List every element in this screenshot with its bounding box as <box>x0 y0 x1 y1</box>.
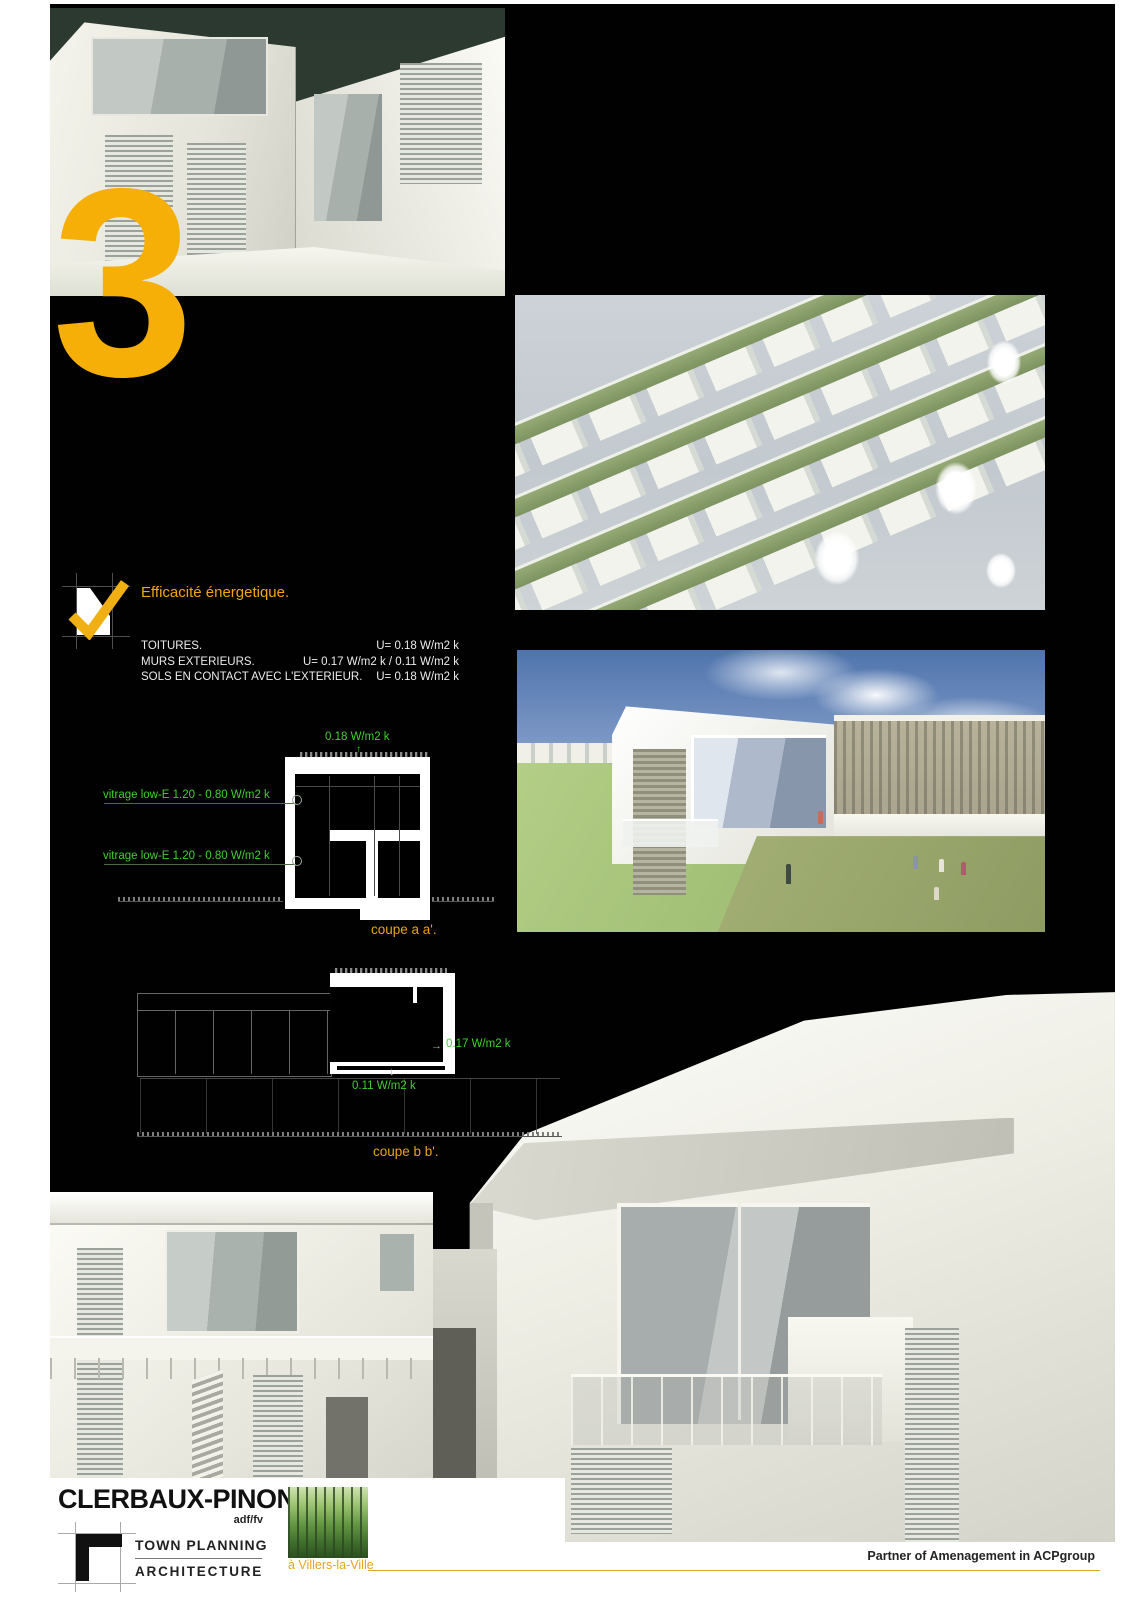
forest-photo <box>288 1487 368 1558</box>
u-value-label: MURS EXTERIEURS. <box>141 655 255 671</box>
section-outline-verticals <box>138 1011 330 1074</box>
louver-panel <box>400 63 482 184</box>
balcony <box>50 1336 433 1359</box>
render-aerial-view <box>515 295 1045 610</box>
window-glass <box>91 37 268 116</box>
section-roof-slab <box>285 757 430 774</box>
logo-divider <box>135 1558 262 1559</box>
firm-suffix: adf/fv <box>58 1514 263 1526</box>
presentation-board-page: 3 Efficacité énergetique. <box>0 0 1131 1600</box>
glazing-label: vitrage low-E 1.20 - 0.80 W/m2 k <box>103 850 270 862</box>
leader-line <box>104 864 296 865</box>
section-line <box>138 1010 330 1011</box>
glazing-label: vitrage low-E 1.20 - 0.80 W/m2 k <box>103 789 270 801</box>
leader-circle <box>292 795 302 805</box>
ground-hatch <box>118 897 283 902</box>
u-value-label: TOITURES. <box>141 639 202 655</box>
u-value-row: MURS EXTERIEURS. U= 0.17 W/m2 k / 0.11 W… <box>141 655 459 671</box>
white-tree <box>928 453 984 537</box>
section-outline-lower <box>140 1078 560 1134</box>
wall-u-label: 0.17 W/m2 k <box>446 1038 511 1050</box>
checkmark-icon <box>66 576 130 640</box>
section-floor-slab <box>330 830 430 841</box>
project-location: à Villers-la-Ville <box>288 1558 374 1572</box>
person-figure <box>818 811 823 824</box>
window-glass <box>380 1234 415 1291</box>
white-tree <box>981 333 1027 403</box>
person-figure <box>961 862 966 875</box>
section-title: Efficacité énergetique. <box>141 584 289 601</box>
section-line <box>399 776 400 896</box>
u-value-table: TOITURES. U= 0.18 W/m2 k MURS EXTERIEURS… <box>141 639 459 686</box>
leader-circle <box>292 856 302 866</box>
u-value-row: TOITURES. U= 0.18 W/m2 k <box>141 639 459 655</box>
section-pier <box>366 841 378 898</box>
person-figure <box>939 859 944 872</box>
logo-corner-mark <box>76 1534 89 1581</box>
white-tree <box>981 547 1021 603</box>
section-tick <box>413 987 417 1003</box>
courtyard-grass <box>718 836 1045 932</box>
window-glass <box>165 1230 299 1333</box>
section-wall <box>285 774 295 898</box>
down-arrow-icon: ↓ <box>389 1066 395 1078</box>
floor-u-label: 0.11 W/m2 k <box>352 1080 416 1092</box>
louver-panel <box>77 1248 123 1517</box>
section-line <box>296 786 420 787</box>
louver-panel <box>571 1448 672 1534</box>
discipline-town-planning: TOWN PLANNING <box>135 1537 268 1553</box>
balcony-rail <box>50 1358 433 1379</box>
crop-mark <box>120 1522 121 1592</box>
section-roof-slab <box>330 973 455 987</box>
person-figure <box>913 856 918 869</box>
person-figure <box>934 887 939 900</box>
u-value-value: U= 0.18 W/m2 k <box>376 670 459 686</box>
louver-panel <box>905 1328 959 1545</box>
leader-line <box>104 803 296 804</box>
location-underline <box>368 1570 1100 1571</box>
render-courtyard-view <box>517 650 1045 932</box>
u-value-row: SOLS EN CONTACT AVEC L'EXTERIEUR. U= 0.1… <box>141 670 459 686</box>
firm-name: CLERBAUX-PINON <box>58 1484 296 1515</box>
ground-hatch <box>432 897 494 902</box>
person-figure <box>786 864 791 884</box>
louver-panel <box>187 143 246 267</box>
section-line <box>374 776 375 896</box>
page-number: 3 <box>52 148 194 416</box>
section-caption-b: coupe b b'. <box>373 1144 439 1159</box>
balcony-rail <box>571 1374 882 1445</box>
section-caption-a: coupe a a'. <box>371 922 437 937</box>
roof-u-label: 0.18 W/m2 k <box>325 731 390 743</box>
balcony <box>623 819 718 846</box>
u-value-label: SOLS EN CONTACT AVEC L'EXTERIEUR. <box>141 670 362 686</box>
section-base-step <box>360 898 430 920</box>
section-interior <box>330 987 443 1062</box>
partner-note: Partner of Amenagement in ACPgroup <box>845 1549 1095 1563</box>
roof-slab <box>50 1192 433 1224</box>
discipline-architecture: ARCHITECTURE <box>135 1564 263 1579</box>
section-line <box>329 776 330 896</box>
u-value-value: U= 0.17 W/m2 k / 0.11 W/m2 k <box>303 655 459 671</box>
crop-mark <box>58 1583 136 1584</box>
section-wall <box>443 973 455 1074</box>
stair-glass <box>314 94 382 221</box>
ground-hatch <box>137 1132 562 1137</box>
right-arrow-icon: → <box>431 1040 442 1052</box>
up-arrow-icon: ↑ <box>356 744 361 755</box>
u-value-value: U= 0.18 W/m2 k <box>376 639 459 655</box>
distant-houses <box>517 743 623 763</box>
white-tree <box>807 522 867 608</box>
window-glass <box>691 735 826 828</box>
